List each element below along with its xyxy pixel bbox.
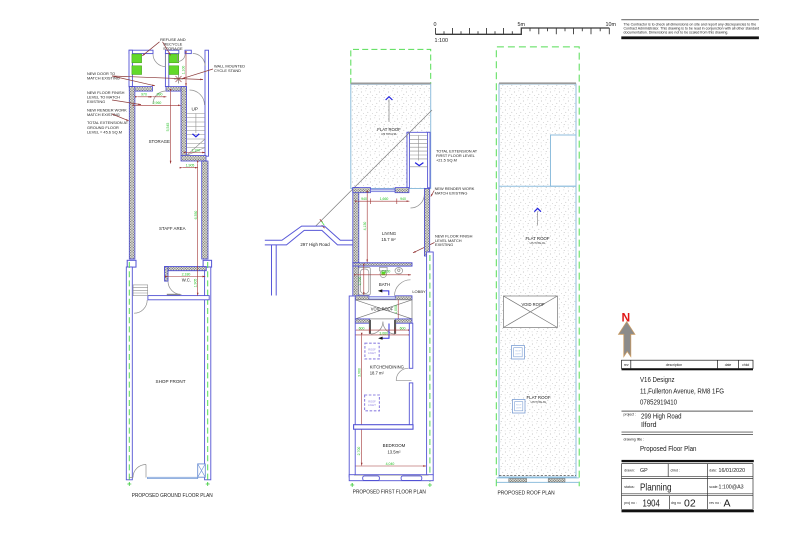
svg-text:drawn:: drawn: [624, 469, 635, 473]
svg-text:FLAT ROOF: FLAT ROOF [526, 236, 550, 241]
svg-text:Ilford: Ilford [641, 422, 657, 429]
svg-text:U/S TOTAL RL: U/S TOTAL RL [531, 401, 547, 404]
svg-text:5,545: 5,545 [166, 123, 170, 132]
svg-text:PROPOSED FIRST FLOOR PLAN: PROPOSED FIRST FLOOR PLAN [353, 489, 426, 495]
svg-text:ROOF: ROOF [516, 404, 522, 406]
svg-text:6,350: 6,350 [194, 211, 198, 220]
svg-text:proj no :: proj no : [624, 501, 637, 505]
svg-text:EXISTING: EXISTING [87, 99, 105, 104]
svg-text:ROOF: ROOF [368, 400, 376, 404]
svg-text:13.5m²: 13.5m² [387, 449, 401, 454]
svg-text:status:: status: [624, 485, 634, 489]
svg-text:940: 940 [361, 197, 367, 201]
svg-text:1,000: 1,000 [394, 305, 398, 314]
svg-text:1904: 1904 [643, 498, 660, 510]
svg-text:chkd :: chkd : [671, 469, 680, 473]
svg-text:project :: project : [624, 412, 636, 416]
svg-text:drg no: drg no [671, 501, 681, 505]
svg-text:1,100: 1,100 [182, 66, 186, 75]
svg-text:VOID ROOF: VOID ROOF [521, 302, 544, 307]
svg-text:FLAT ROOF: FLAT ROOF [377, 127, 401, 132]
svg-text:UP: UP [192, 106, 198, 111]
svg-text:PROPOSED ROOF PLAN: PROPOSED ROOF PLAN [498, 491, 555, 497]
svg-text:LIVING: LIVING [382, 231, 397, 236]
svg-text:date: date [725, 363, 732, 367]
svg-text:VOID ROOF: VOID ROOF [371, 306, 394, 311]
svg-text:U/S TOTAL RL: U/S TOTAL RL [530, 242, 546, 245]
svg-text:1:100: 1:100 [435, 38, 449, 44]
svg-text:SHOP FRONT: SHOP FRONT [156, 379, 186, 384]
svg-text:11,Fullerton Avenue, RM8 1FG: 11,Fullerton Avenue, RM8 1FG [640, 389, 724, 396]
svg-text:rev no :: rev no : [709, 501, 721, 505]
svg-text:rev: rev [624, 363, 629, 367]
svg-text:600: 600 [359, 326, 365, 330]
svg-text:PROPOSED GROUND FLOOR PLAN: PROPOSED GROUND FLOOR PLAN [132, 493, 213, 499]
svg-text:1,905: 1,905 [186, 164, 195, 168]
svg-text:15.7 m²: 15.7 m² [381, 237, 396, 242]
svg-text:1,660: 1,660 [380, 197, 389, 201]
svg-text:600: 600 [400, 326, 406, 330]
svg-text:1,905: 1,905 [194, 279, 198, 288]
svg-text:V16 Designz: V16 Designz [640, 377, 675, 384]
svg-text:chkd: chkd [742, 363, 749, 367]
svg-text:LOBBY: LOBBY [412, 289, 426, 294]
svg-text:970: 970 [141, 93, 147, 97]
svg-text:2,630: 2,630 [382, 270, 391, 274]
svg-text:2,700: 2,700 [357, 447, 361, 456]
svg-text:1:100@A3: 1:100@A3 [719, 484, 744, 490]
svg-text:4,040: 4,040 [386, 462, 395, 466]
svg-text:+21.5 SQ.M: +21.5 SQ.M [436, 158, 457, 163]
svg-text:GP: GP [640, 468, 648, 474]
svg-text:ROOF: ROOF [368, 348, 376, 352]
svg-text:CYCLE STAND: CYCLE STAND [214, 68, 241, 73]
svg-text:5m: 5m [518, 22, 526, 28]
svg-text:MATCH EXISTING: MATCH EXISTING [87, 112, 120, 117]
svg-text:BATH: BATH [379, 282, 390, 287]
svg-text:N: N [622, 311, 631, 325]
svg-text:940: 940 [400, 197, 406, 201]
svg-text:drawing title :: drawing title : [624, 437, 645, 441]
svg-text:A: A [724, 498, 731, 510]
svg-text:2,960: 2,960 [153, 101, 162, 105]
svg-text:MATCH EXISTING: MATCH EXISTING [435, 191, 468, 196]
svg-text:297 High Road: 297 High Road [300, 242, 330, 247]
svg-text:EXISTING: EXISTING [435, 242, 453, 247]
svg-text:LIGHT: LIGHT [516, 407, 522, 409]
svg-text:02: 02 [684, 498, 696, 510]
svg-text:FLAT ROOF: FLAT ROOF [527, 395, 551, 400]
svg-text:4,130: 4,130 [363, 222, 367, 231]
svg-text:ROOF: ROOF [515, 350, 521, 352]
svg-text:scale:: scale: [709, 485, 718, 489]
svg-text:1,100: 1,100 [191, 148, 200, 152]
svg-text:description: description [666, 363, 683, 367]
svg-text:18.7 m²: 18.7 m² [370, 370, 385, 375]
svg-text:3,960: 3,960 [357, 368, 361, 377]
svg-text:16/01/2020: 16/01/2020 [719, 468, 746, 474]
svg-text:Proposed Floor Plan: Proposed Floor Plan [640, 444, 697, 453]
svg-text:W.C.: W.C. [182, 278, 191, 283]
svg-text:299 High Road: 299 High Road [641, 413, 682, 420]
svg-text:STORAGE: STORAGE [149, 139, 170, 144]
svg-text:990: 990 [157, 93, 163, 97]
svg-text:LIGHT: LIGHT [368, 403, 376, 407]
svg-text:3,060: 3,060 [379, 331, 388, 335]
svg-text:LEVEL = 45.6 SQ.M: LEVEL = 45.6 SQ.M [87, 129, 122, 134]
svg-text:date:: date: [709, 469, 717, 473]
svg-text:2,180: 2,180 [182, 272, 191, 276]
svg-text:BEDROOM: BEDROOM [383, 443, 406, 448]
svg-text:Planning: Planning [640, 482, 672, 494]
svg-text:07852919410: 07852919410 [640, 400, 677, 407]
svg-text:LIGHT: LIGHT [515, 353, 521, 355]
svg-text:1,700: 1,700 [358, 277, 362, 286]
svg-text:U/S TOTAL RL: U/S TOTAL RL [381, 133, 397, 136]
svg-text:LIGHT: LIGHT [368, 351, 376, 355]
svg-text:10m: 10m [606, 22, 617, 28]
svg-text:0: 0 [434, 22, 437, 28]
svg-text:documentation. Dimensions are: documentation. Dimensions are not to be … [624, 31, 729, 35]
svg-text:STAFF AREA: STAFF AREA [159, 226, 186, 231]
svg-text:KITCHEN/DINING: KITCHEN/DINING [370, 364, 404, 369]
